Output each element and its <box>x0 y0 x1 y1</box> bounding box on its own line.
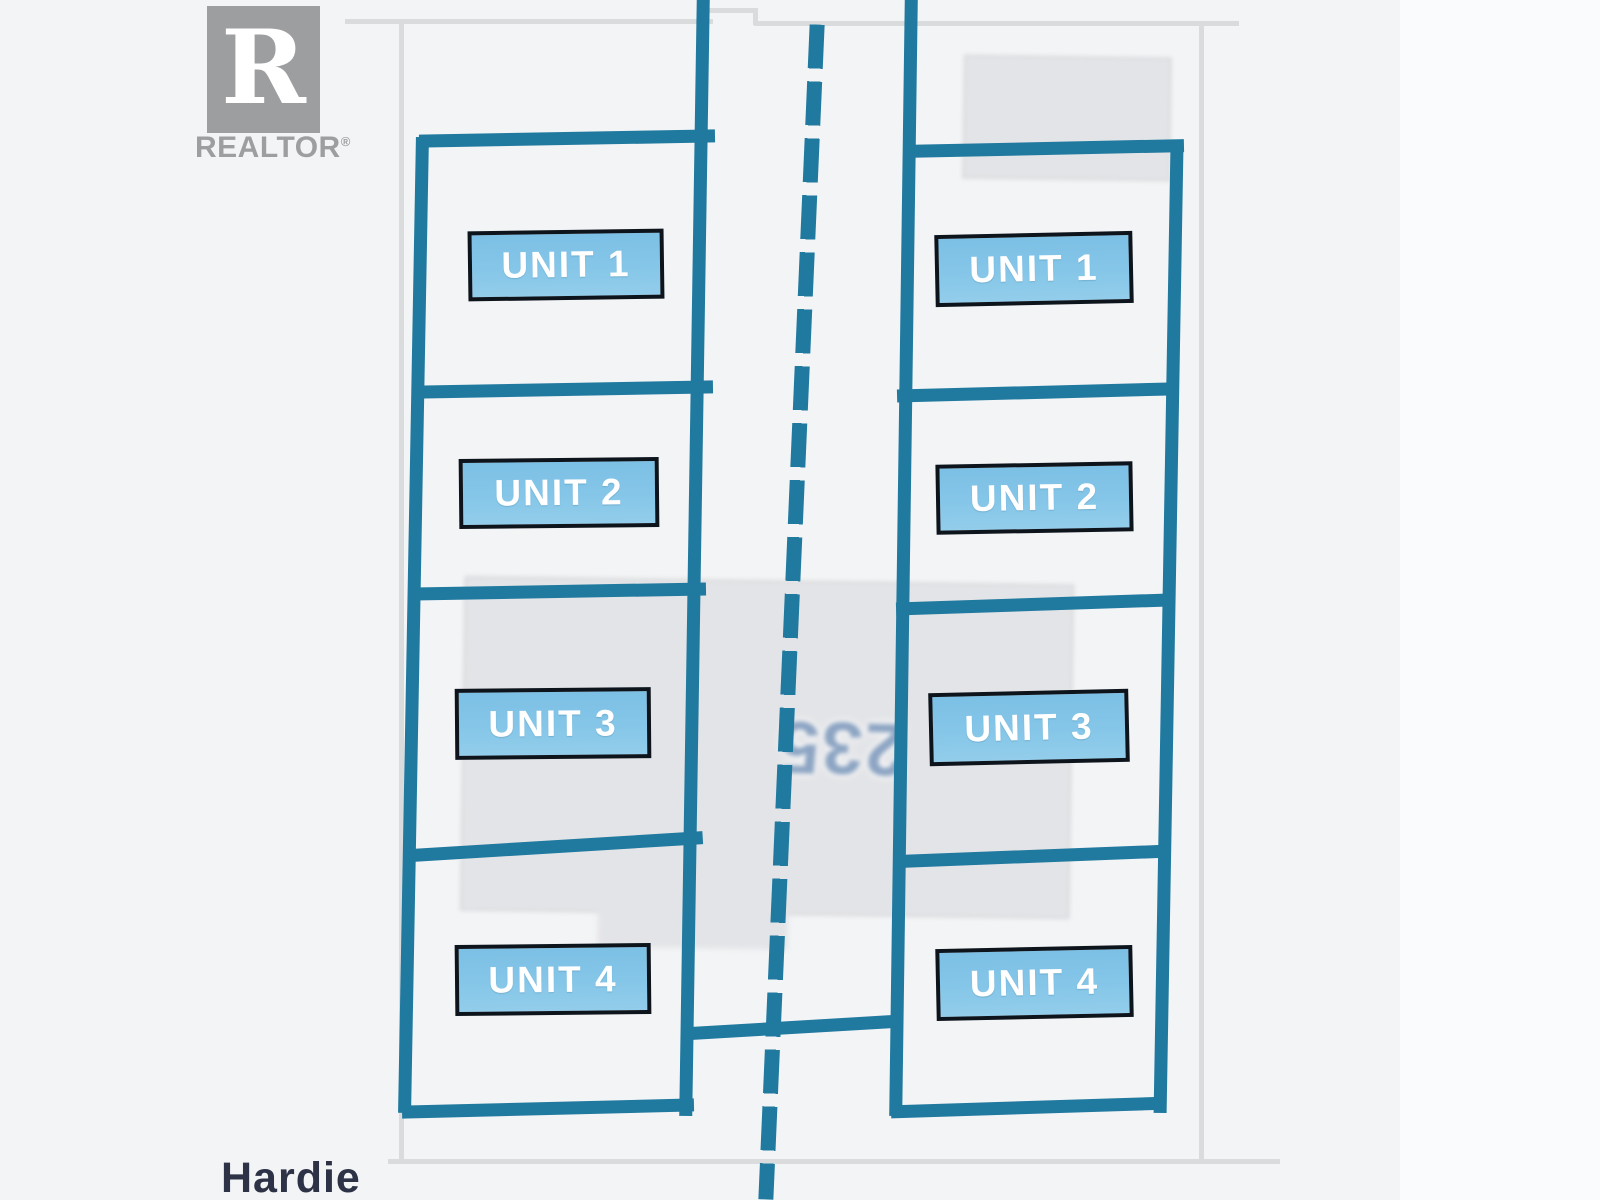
realtor-logo-letter: R <box>221 17 306 119</box>
right-unit-1-label: UNIT 1 <box>934 231 1133 307</box>
site-plan-canvas: 235 UNIT 1 UNIT 2 UNIT 3 UNIT 4 UNIT 1 U… <box>0 0 1600 1200</box>
left-lot-divider-unit1-unit2 <box>417 380 713 398</box>
registered-trademark-symbol: ® <box>341 134 351 149</box>
right-unit-2-label: UNIT 2 <box>935 461 1133 534</box>
left-unit-4-label: UNIT 4 <box>455 943 652 1016</box>
left-unit-2-label: UNIT 2 <box>459 457 660 529</box>
right-lot-divider-unit1-unit2 <box>897 382 1169 402</box>
realtor-logo-icon: R <box>207 6 320 133</box>
realtor-wordmark: REALTOR® <box>195 131 365 165</box>
right-lot-right-line <box>1154 150 1184 1113</box>
building-footprint-top-right <box>962 55 1172 182</box>
right-lot-bottom-line <box>891 1097 1166 1119</box>
left-unit-3-label: UNIT 3 <box>455 687 652 760</box>
ghost-house-number: 235 <box>785 704 907 792</box>
right-lot-left-line <box>889 0 918 1116</box>
left-unit-1-label: UNIT 1 <box>468 229 665 302</box>
street-name-label: Hardie <box>221 1154 361 1200</box>
left-lot-top-line <box>419 129 715 147</box>
right-unit-3-label: UNIT 3 <box>928 689 1130 767</box>
background-right-strip <box>1400 0 1600 1200</box>
lot-boundary-right-line <box>1199 23 1204 1163</box>
realtor-wordmark-text: REALTOR <box>195 131 341 164</box>
lot-boundary-bottom-line <box>388 1159 1280 1164</box>
lot-connector-line <box>686 1015 898 1041</box>
right-unit-4-label: UNIT 4 <box>935 945 1133 1021</box>
lot-boundary-top-right-segment <box>754 21 1239 26</box>
left-lot-right-line <box>679 0 710 1116</box>
left-lot-bottom-line <box>402 1098 694 1118</box>
